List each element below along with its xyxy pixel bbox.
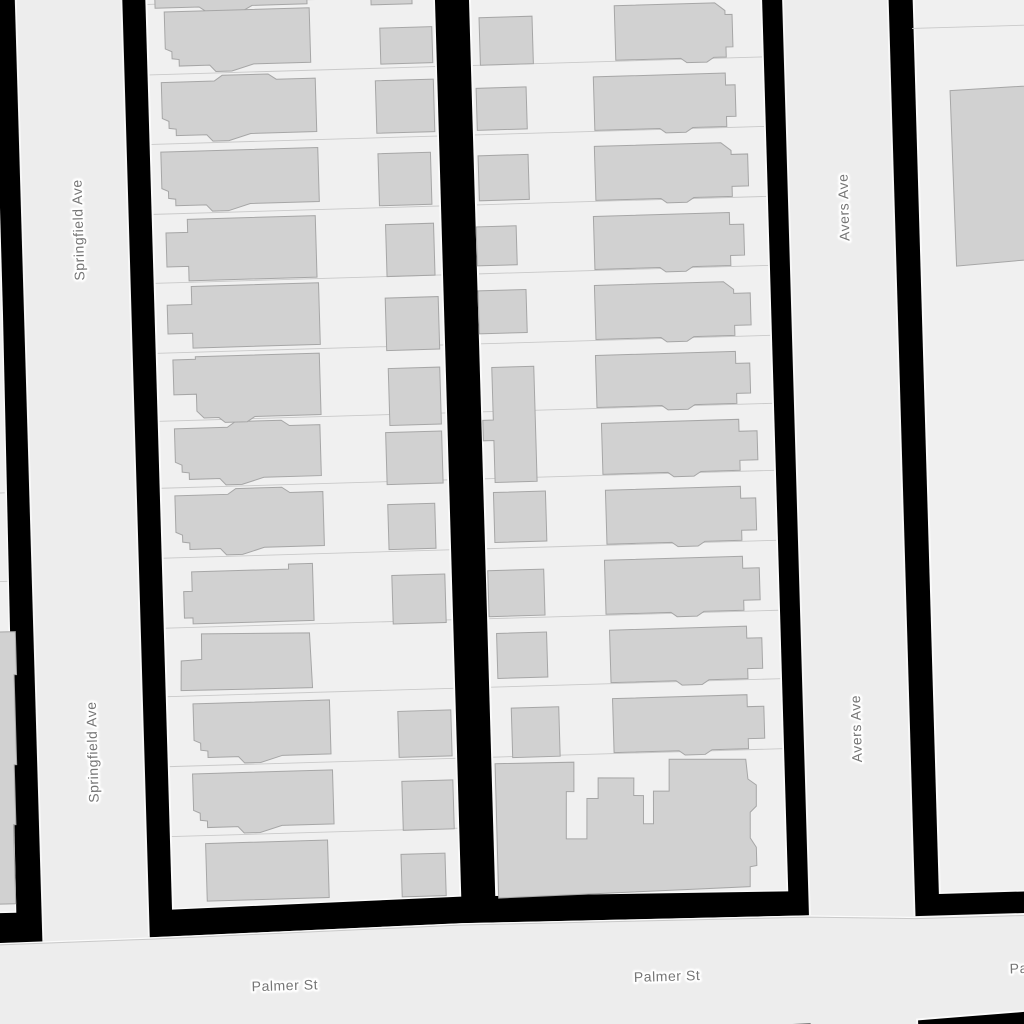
- svg-text:Palmer St: Palmer St: [634, 967, 701, 985]
- svg-text:Palmer St: Palmer St: [1009, 959, 1024, 977]
- svg-text:Avers Ave: Avers Ave: [847, 695, 865, 763]
- svg-text:Avers Ave: Avers Ave: [835, 173, 853, 241]
- svg-text:Springfield Ave: Springfield Ave: [69, 179, 88, 281]
- svg-text:Springfield Ave: Springfield Ave: [83, 701, 102, 803]
- svg-text:Palmer St: Palmer St: [251, 976, 318, 994]
